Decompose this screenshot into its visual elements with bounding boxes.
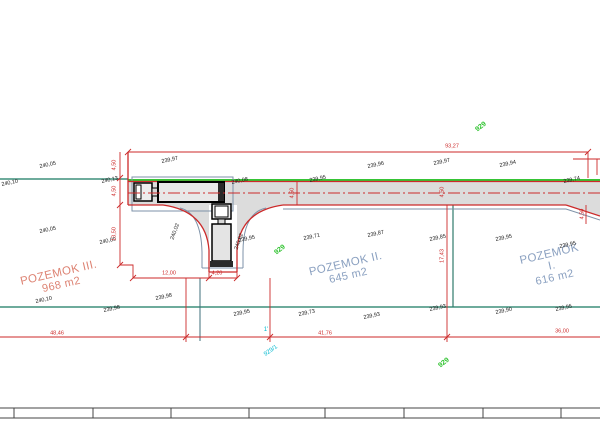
dimension-value-label: 4,50 — [440, 187, 446, 198]
plan-linework — [0, 0, 600, 426]
scale-bar — [0, 408, 600, 418]
dimension-value-label: 93,27 — [445, 144, 459, 150]
dimension-value-label: 4,50 — [112, 186, 118, 197]
dimension-value-label: 41,76 — [318, 331, 332, 337]
dimension-value-label: 12,00 — [162, 271, 176, 277]
dimension-value-label: 36,00 — [555, 329, 569, 335]
dimension-value-label: 4,50 — [290, 188, 296, 199]
dimension-value-label: 17,43 — [440, 249, 446, 263]
dimension-value-label: 13,50 — [112, 227, 118, 241]
dimension-value-label: 4,20 — [212, 271, 223, 277]
dimension-value-label: 48,46 — [50, 331, 64, 337]
site-plan-drawing: POZEMOK III. 968 m2 POZEMOK II. 645 m2 P… — [0, 0, 600, 426]
truck-top-view-horizontal — [134, 182, 224, 202]
dimension-value-label: 4,50 — [580, 209, 586, 220]
parcel-subnumber-label: 1' — [264, 327, 268, 333]
dimension-value-label: 4,50 — [112, 160, 118, 171]
truck-top-view-vertical — [210, 204, 233, 267]
